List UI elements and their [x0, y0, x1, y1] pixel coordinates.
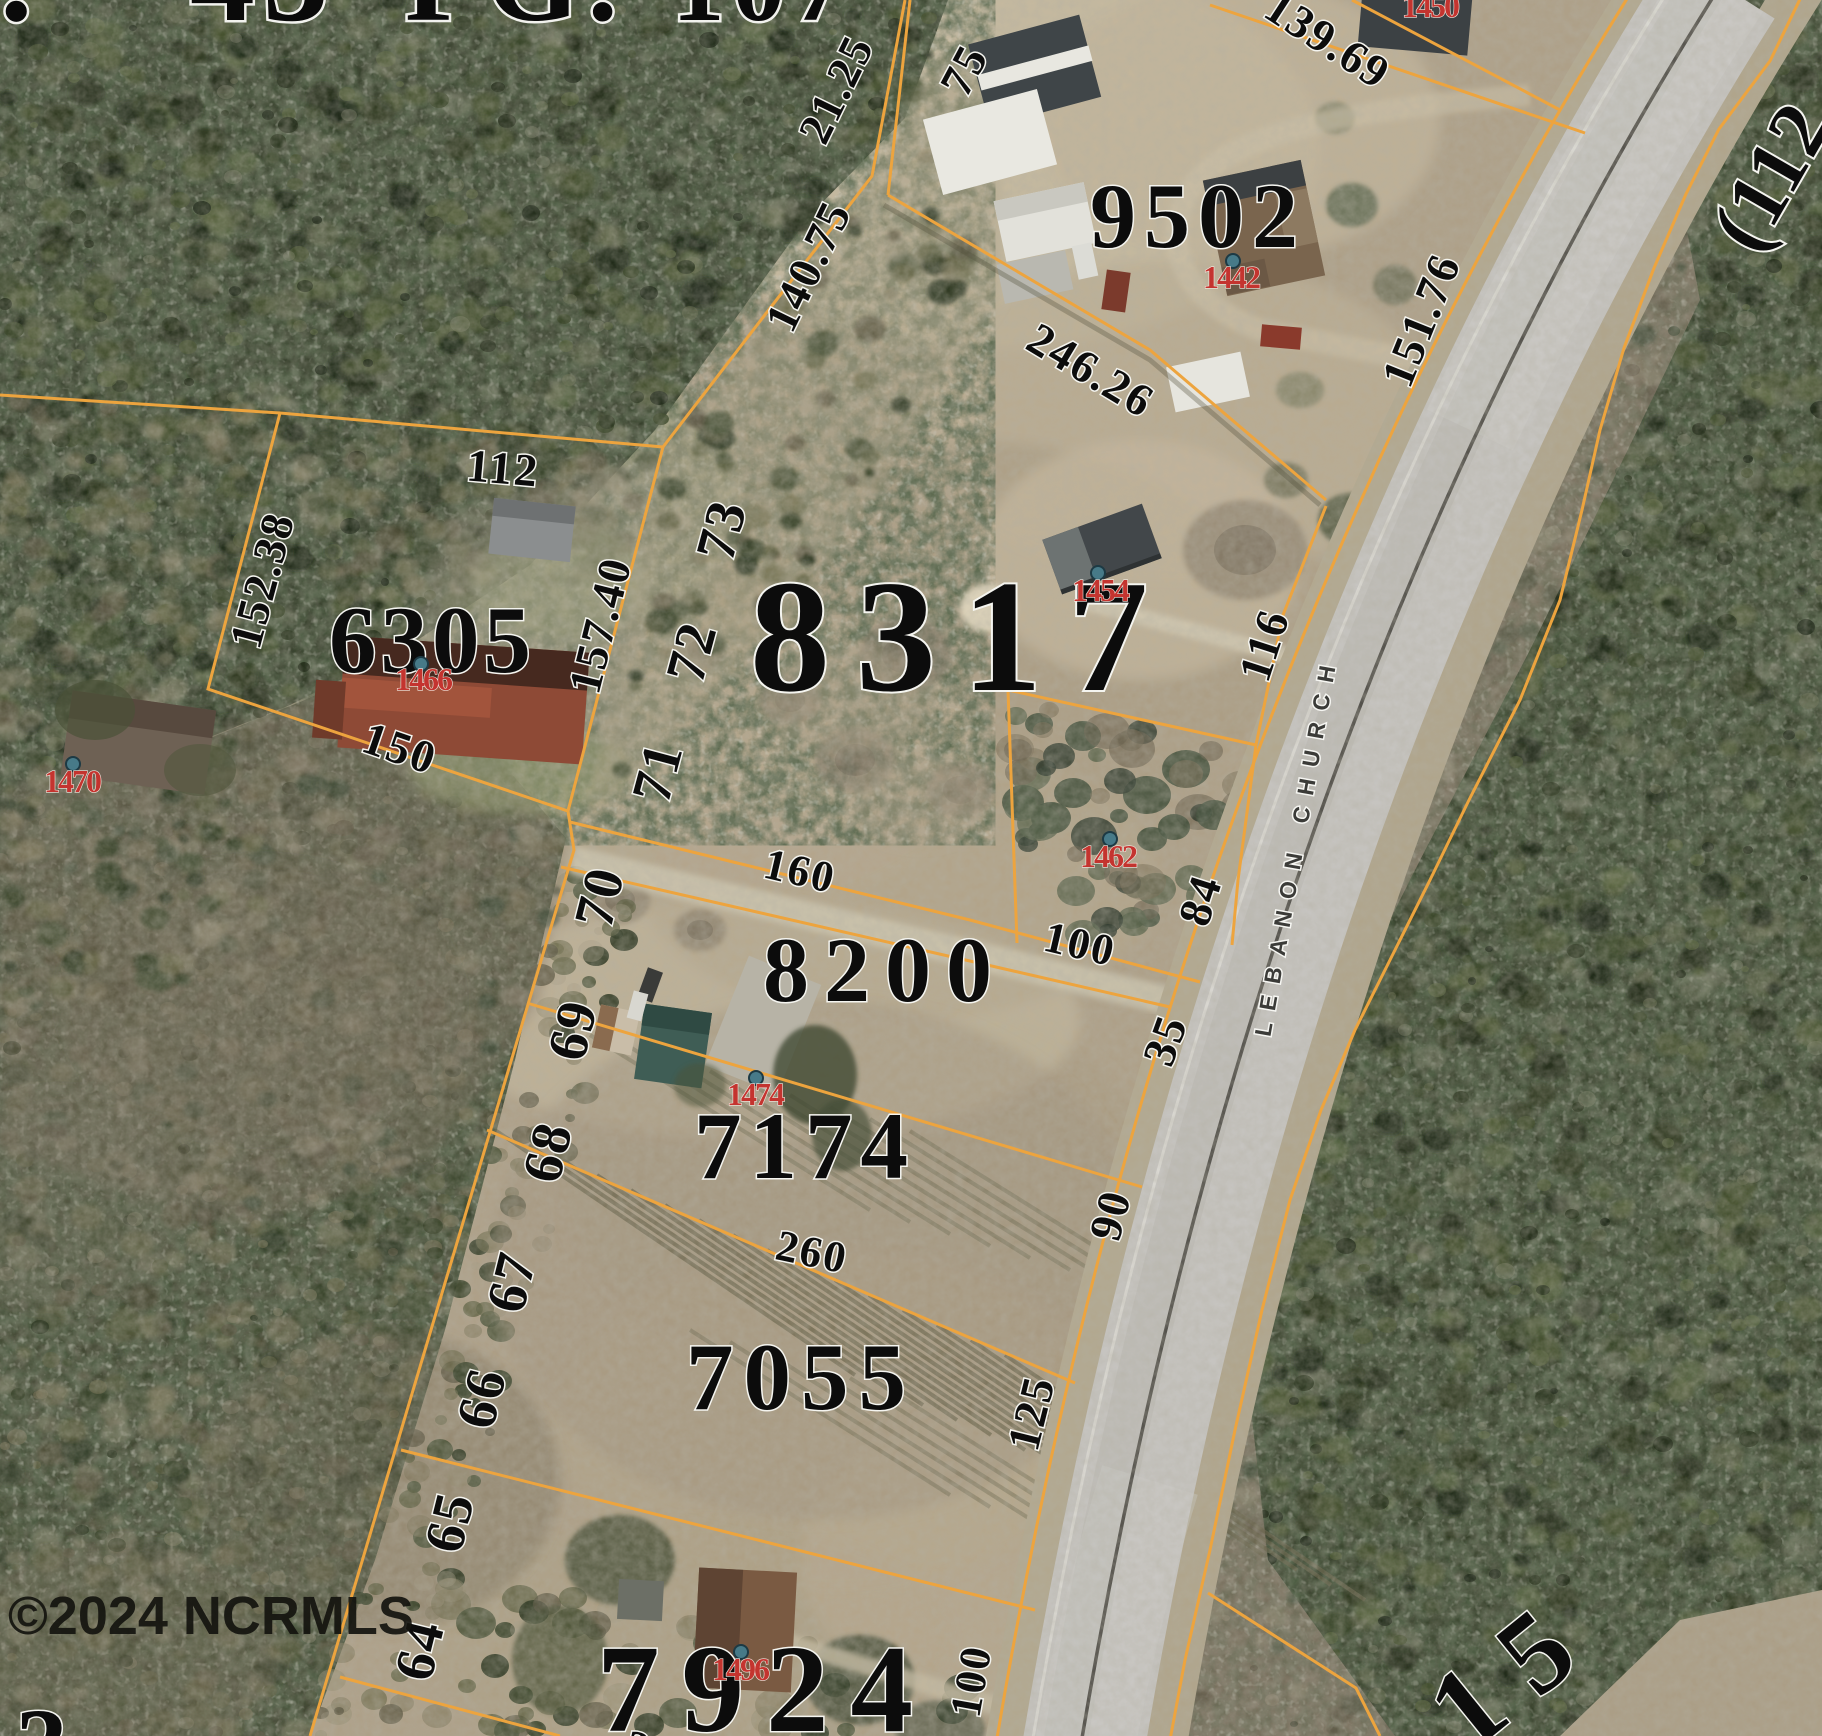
svg-text:8200: 8200: [763, 919, 1007, 1021]
svg-text:1454: 1454: [1072, 572, 1130, 608]
svg-text:1470: 1470: [44, 763, 101, 799]
svg-text:112: 112: [465, 439, 542, 496]
svg-text:.: .: [0, 0, 41, 49]
svg-text:1462: 1462: [1080, 838, 1137, 874]
svg-text:107: 107: [672, 0, 854, 43]
svg-text:©2024 NCRMLS: ©2024 NCRMLS: [8, 1586, 414, 1646]
svg-text:43: 43: [190, 0, 336, 49]
svg-text:1496: 1496: [712, 1651, 770, 1687]
svg-text:1466: 1466: [395, 661, 453, 697]
svg-text:1474: 1474: [727, 1076, 785, 1112]
svg-text:3: 3: [16, 1687, 69, 1736]
svg-text:PG.: PG.: [405, 0, 626, 46]
svg-text:7055: 7055: [686, 1324, 916, 1430]
svg-text:9502: 9502: [1090, 165, 1306, 267]
svg-text:1450: 1450: [1402, 0, 1459, 24]
svg-text:1442: 1442: [1203, 259, 1260, 295]
